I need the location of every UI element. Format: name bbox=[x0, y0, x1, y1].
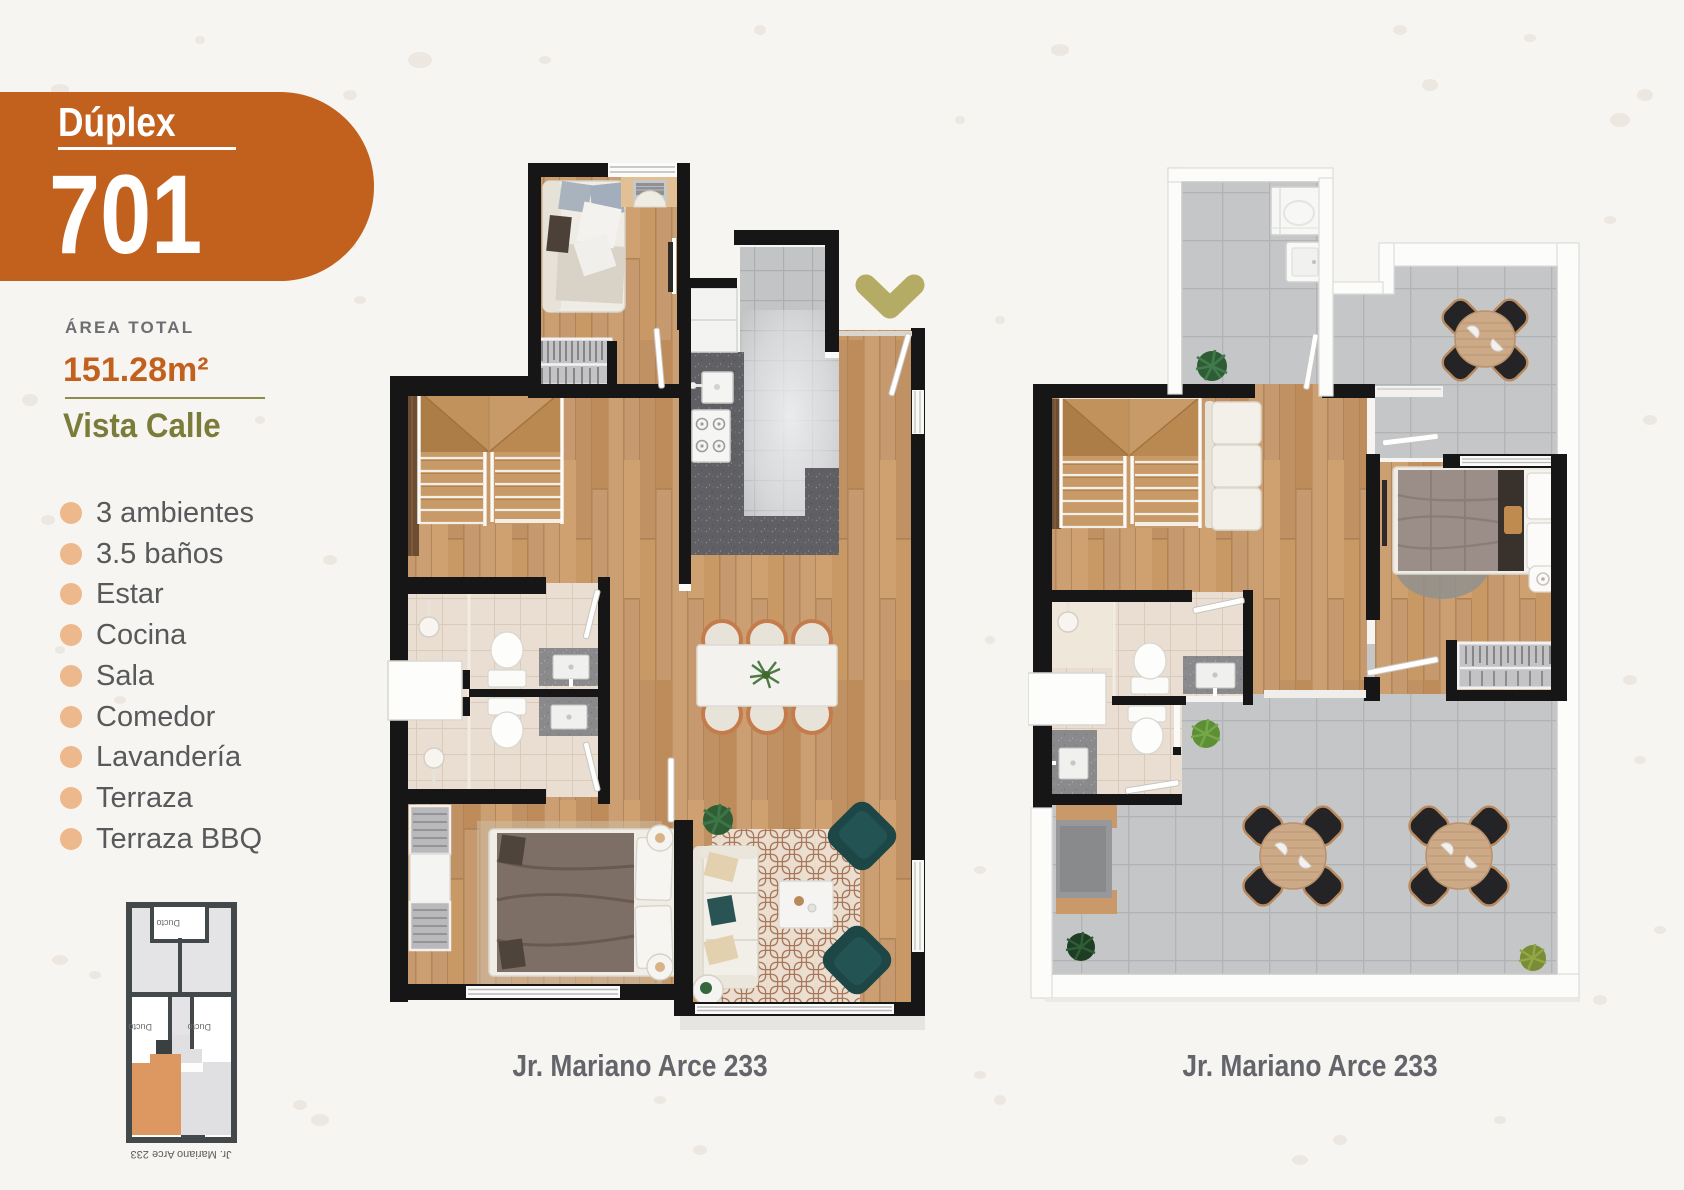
svg-text:Ducto: Ducto bbox=[187, 1022, 211, 1032]
svg-text:Jr. Mariano Arce 233: Jr. Mariano Arce 233 bbox=[131, 1148, 232, 1160]
svg-text:Ducto: Ducto bbox=[128, 1022, 152, 1032]
svg-text:Ducto: Ducto bbox=[156, 918, 180, 928]
